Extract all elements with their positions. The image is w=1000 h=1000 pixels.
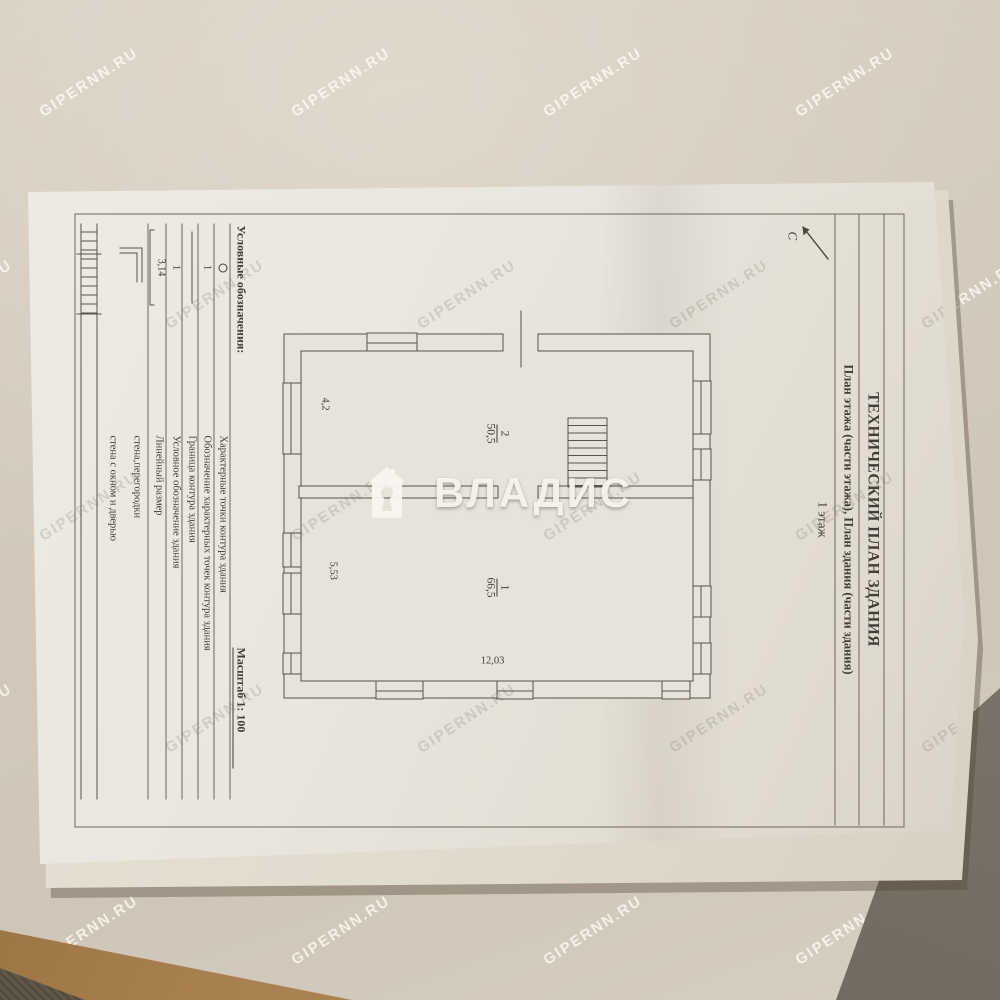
photo-of-technical-plan: GIPERNN.RUGIPERNN.RUGIPERNN.RUGIPERNN.RU… — [0, 0, 1000, 1000]
site-watermark-text: GIPERNN.RU — [0, 256, 15, 332]
site-watermark-text: GIPERNN.RU — [36, 44, 141, 120]
vladis-house-icon — [366, 466, 408, 520]
site-watermark-text: GIPERNN.RU — [540, 44, 645, 120]
site-watermark-text: GIPERNN.RU — [288, 44, 393, 120]
site-watermark-text: GIPERNN.RU — [792, 44, 897, 120]
site-watermark-text: GIPERNN.RU — [288, 44, 393, 120]
site-watermark-text: GIPERNN.RU — [540, 892, 645, 968]
site-watermark-text: GIPERNN.RU — [792, 44, 897, 120]
site-watermark-text: GIPERNN.RU — [162, 680, 267, 756]
site-watermark-text: GIPERNN.RU — [666, 256, 771, 332]
site-watermark-text: GIPERNN.RU — [288, 892, 393, 968]
site-watermark-text: GIPERNN.RU — [540, 44, 645, 120]
site-watermark-text: GIPERNN.RU — [0, 680, 15, 756]
site-watermark-text: GIPERNN.RU — [414, 256, 519, 332]
site-watermark-text: GIPERNN.RU — [36, 468, 141, 544]
site-watermark-text: GIPERNN.RU — [162, 256, 267, 332]
brand-watermark: ВЛАДИС — [366, 466, 633, 520]
site-watermark-text: GIPERNN.RU — [414, 680, 519, 756]
site-watermark-text: GIPERNN.RU — [0, 680, 15, 756]
site-watermark-text: GIPERNN.RU — [666, 680, 771, 756]
site-watermark-text: GIPERNN.RU — [0, 256, 15, 332]
site-watermark-text: GIPERNN.RU — [792, 468, 897, 544]
brand-watermark-text: ВЛАДИС — [434, 469, 633, 517]
site-watermark-text: GIPERNN.RU — [36, 44, 141, 120]
site-watermark-text: GIPERNN.RU — [540, 892, 645, 968]
site-watermark-text: GIPERNN.RU — [288, 892, 393, 968]
